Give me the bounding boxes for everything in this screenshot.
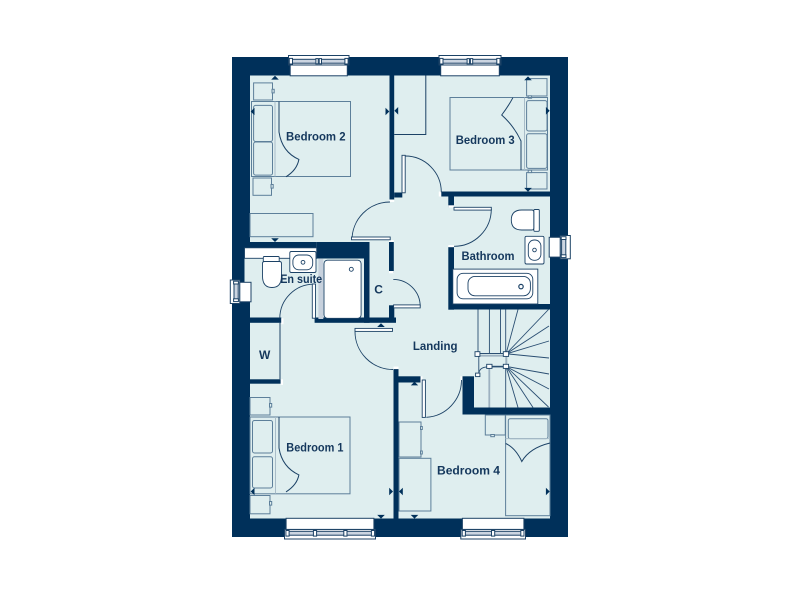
svg-text:Landing: Landing xyxy=(413,339,458,353)
svg-text:C: C xyxy=(374,283,383,297)
svg-text:Bedroom 4: Bedroom 4 xyxy=(437,463,500,477)
svg-text:En suite: En suite xyxy=(280,272,322,286)
svg-text:W: W xyxy=(259,348,271,362)
svg-text:Bedroom 2: Bedroom 2 xyxy=(286,129,346,143)
svg-text:Bedroom 1: Bedroom 1 xyxy=(286,441,343,455)
svg-text:Bathroom: Bathroom xyxy=(462,249,515,263)
svg-text:Bedroom 3: Bedroom 3 xyxy=(456,133,515,147)
